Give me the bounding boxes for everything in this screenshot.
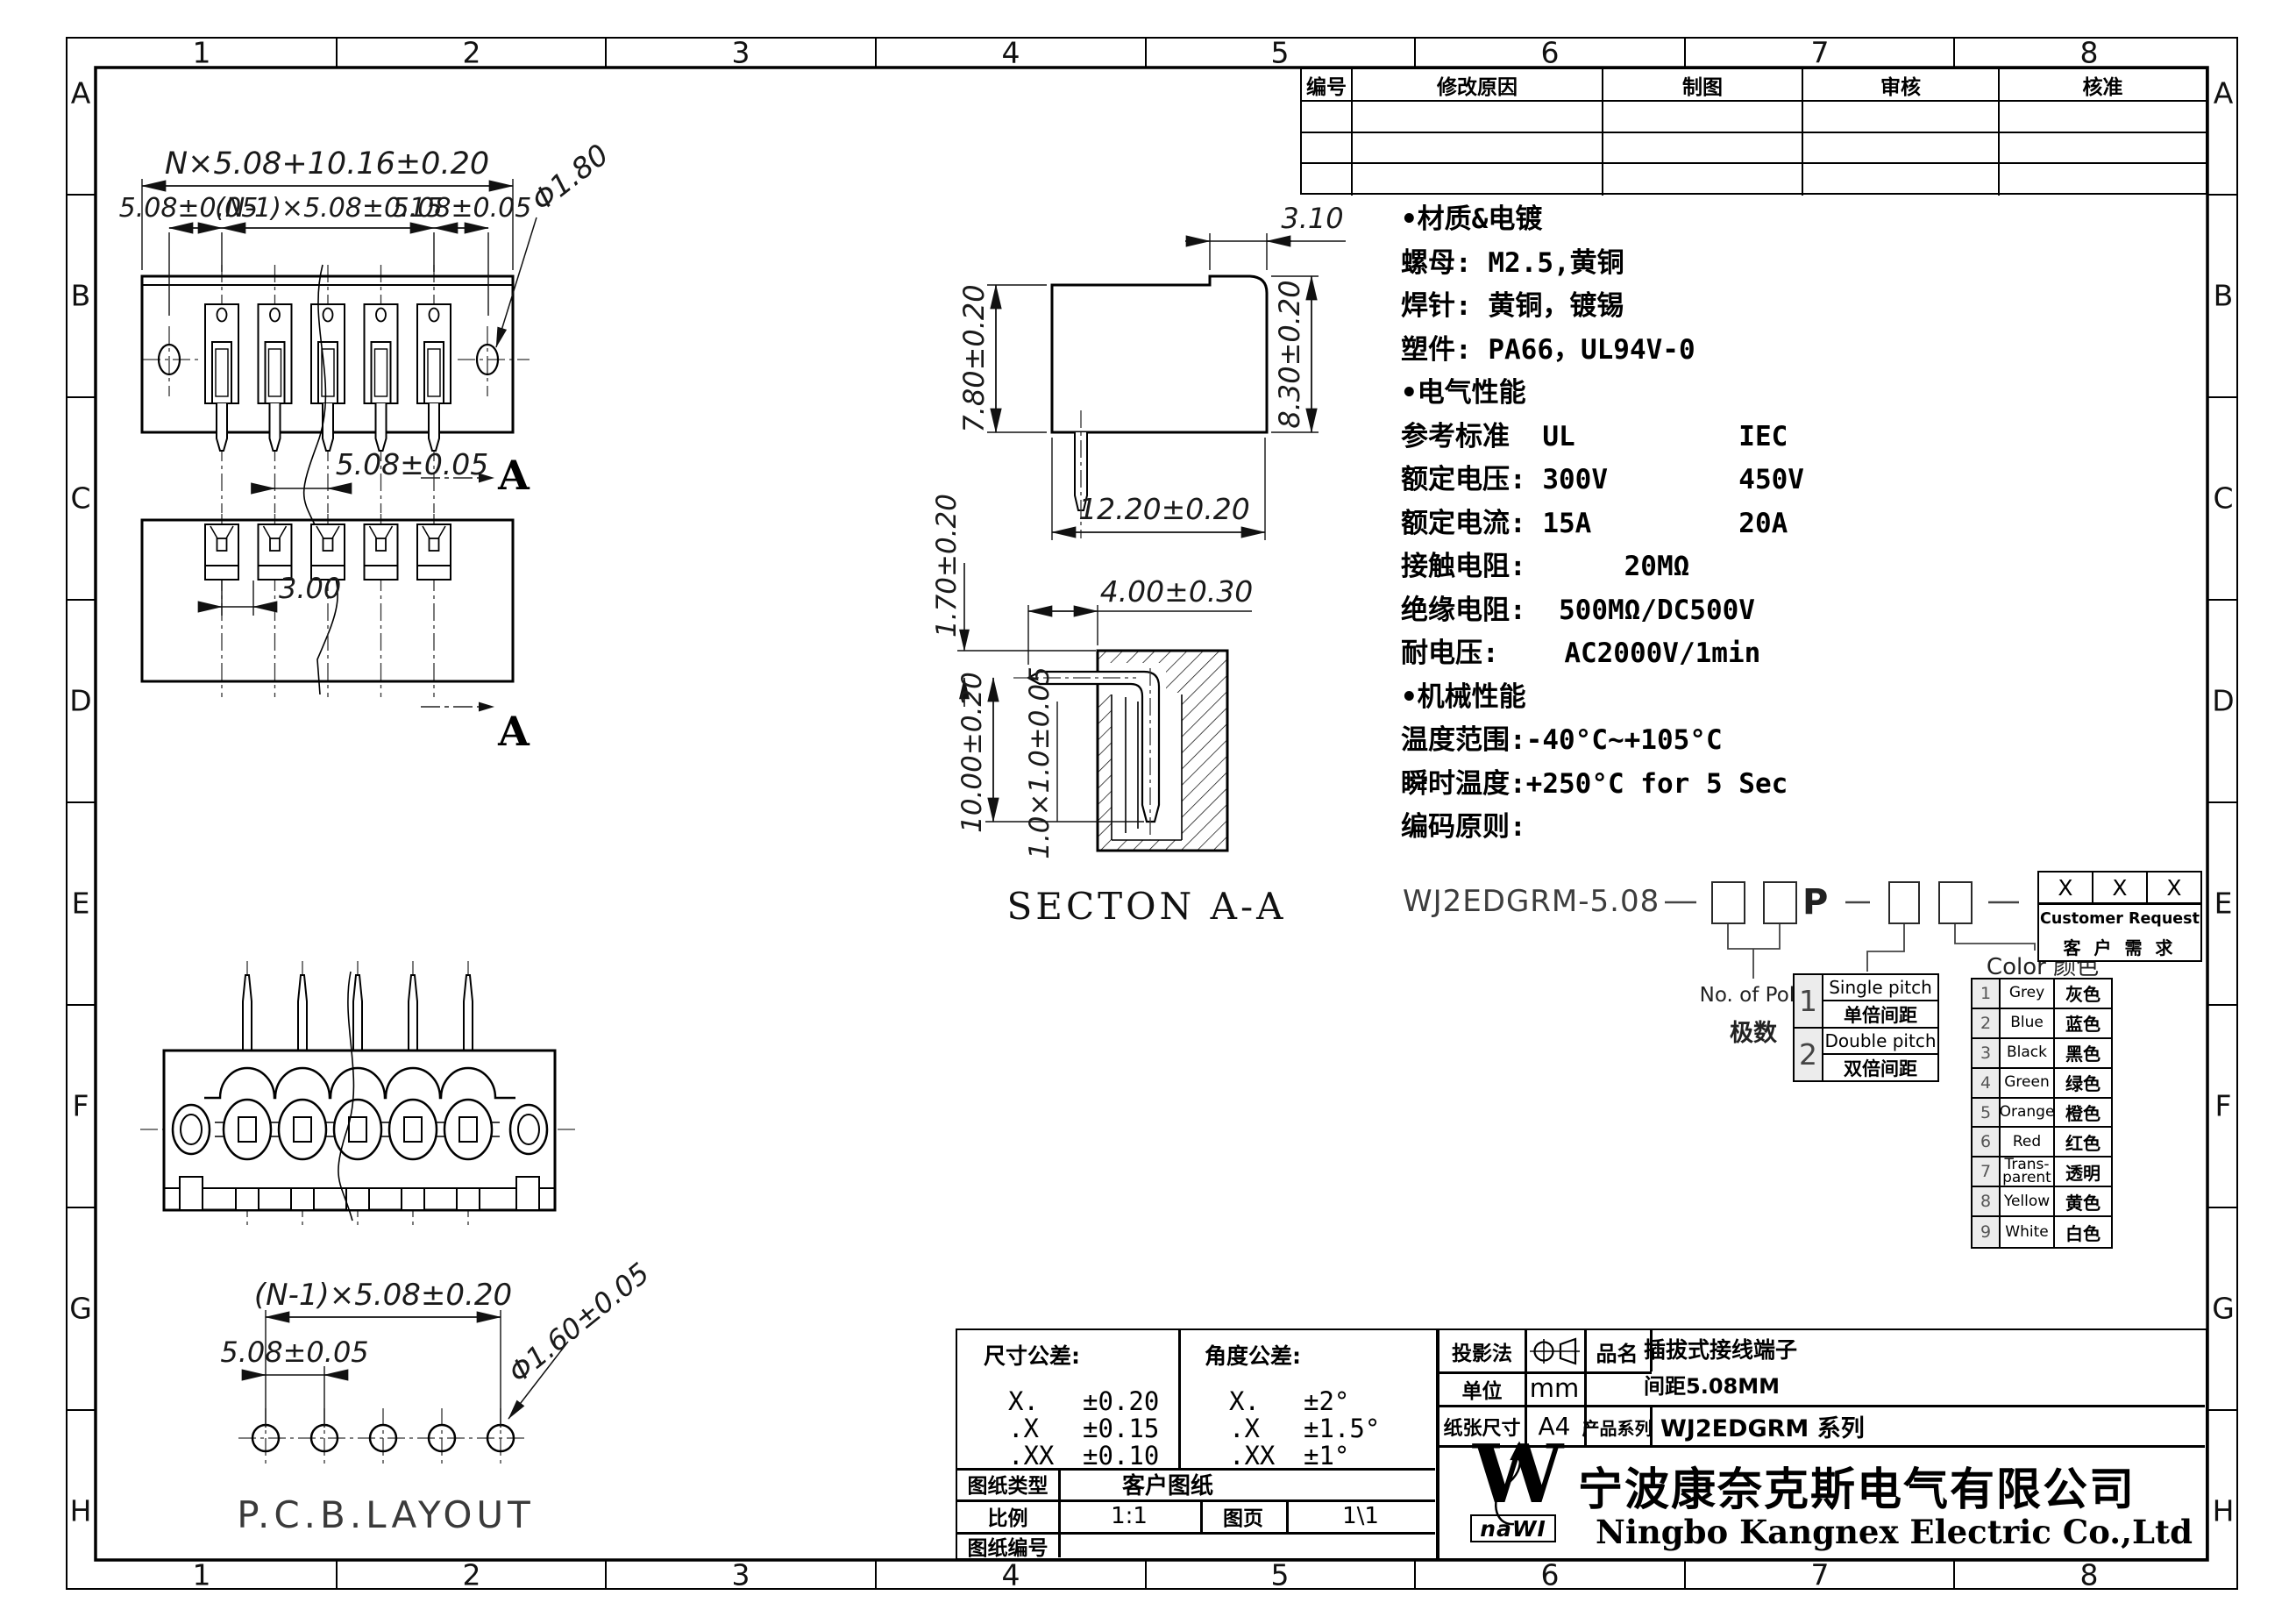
revision-empty-row [1302,102,2206,133]
color-name-en: White [2001,1217,2055,1247]
color-row: 4 Green 绿色 [1973,1069,2111,1099]
pitch-row: 2 Double pitch 双倍间距 [1795,1029,1937,1080]
product-name-label: 品名 [1584,1337,1650,1365]
pitch-label-cn: 单倍间距 [1823,1001,1937,1027]
company-name-cn: 宁波康奈克斯电气有限公司 [1578,1453,2136,1518]
dim-pcb-pitch: 5.08±0.05 [220,1336,368,1369]
dim-tolerance-title: 尺寸公差: [984,1339,1080,1371]
dim-pin-square: 1.0×1.0±0.05 [1024,666,1056,859]
pole-digit-box-2 [1763,881,1797,924]
dim-pitch-single: 5.08±0.05 [336,447,489,481]
spec-line: 额定电压: 300V 450V [1401,459,2216,502]
tolerance-row: .XX±1° [1229,1442,1422,1470]
part-suffix-p: P [1802,882,1828,922]
section-title: SECTON A-A [1007,885,1287,928]
dim-total-width: N×5.08+10.16±0.20 [165,146,489,182]
spec-line: •电气性能 [1401,372,2216,416]
color-code: 1 [1973,979,2001,1008]
row-label: B [71,279,91,313]
tolerance-block: 尺寸公差: X.±0.20.X±0.15.XX±0.10 角度公差: X.±2°… [956,1328,1438,1560]
row-label: G [2212,1292,2235,1326]
color-row: 3 Black 黑色 [1973,1039,2111,1069]
dim-hole-dia: Φ1.80 [525,137,615,217]
spec-line: 温度范围:-40°C~+105°C [1401,719,2216,763]
bottom-view [140,961,579,1229]
angle-tolerance-title: 角度公差: [1205,1339,1301,1371]
revision-table: 编号 修改原因 制图 审核 核准 [1300,68,2207,195]
dim-pcb-hole: Φ1.60±0.05 [502,1257,656,1390]
col-label: 4 [1002,36,1020,70]
color-code: 7 [1973,1157,2001,1186]
color-name-en: Grey [2001,979,2055,1008]
col-label: 6 [1541,36,1560,70]
pitch-label-cn: 双倍间距 [1823,1055,1937,1080]
color-name-cn: 绿色 [2055,1069,2111,1097]
title-block: 投影法 品名 插拔式接线端子 间距5.08MM 单位 mm 纸张尺寸 A4 产品… [1438,1328,2207,1560]
customer-request-en: Customer Request [2039,905,2200,932]
row-label: D [69,684,91,718]
revision-empty-row [1302,164,2206,196]
row-label: C [70,481,90,516]
row-label: B [2214,279,2234,313]
revision-header: 制图 [1603,69,1803,100]
tolerance-row: .X±0.15 [1008,1415,1201,1442]
col-label: 5 [1271,36,1290,70]
color-code: 2 [1973,1009,2001,1037]
col-label: 2 [463,1558,481,1592]
col-label: 1 [193,1558,211,1592]
customer-x-row: X X X [2039,873,2200,905]
product-name-line1: 插拔式接线端子 [1644,1336,1994,1362]
color-name-en: Black [2001,1039,2055,1067]
col-label: 6 [1541,1558,1560,1592]
spec-line: 绝缘电阻: 500MΩ/DC500V [1401,589,2216,633]
dim-400: 4.00±0.30 [1100,574,1254,609]
spec-line: 焊针: 黄铜，镀锡 [1401,285,2216,329]
revision-header-row: 编号 修改原因 制图 审核 核准 [1302,69,2206,102]
spec-line: 额定电流: 15A 20A [1401,502,2216,546]
color-row: 6 Red 红色 [1973,1128,2111,1157]
tolerance-row: .X±1.5° [1229,1415,1422,1442]
dim-3mm: 3.00 [279,572,341,605]
color-table: 1 Grey 灰色 2 Blue 蓝色 3 Black 黑色 4 Green 绿… [1971,978,2113,1249]
col-label: 4 [1002,1558,1020,1592]
product-name-line2: 间距5.08MM [1644,1371,1994,1397]
spec-line: 瞬时温度:+250°C for 5 Sec [1401,763,2216,807]
spec-line: 塑件: PA66，UL94V-0 [1401,329,2216,373]
revision-header: 审核 [1803,69,2000,100]
pcb-layout: (N-1)×5.08±0.20 5.08±0.05 Φ1.60±0.05 P.C… [220,1257,656,1536]
row-label: G [69,1292,92,1326]
dim-tolerance-rows: X.±0.20.X±0.15.XX±0.10 [1008,1388,1201,1470]
color-name-cn: 灰色 [2055,979,2111,1008]
revision-empty-row [1302,133,2206,165]
color-name-en: Trans- parent [2001,1157,2055,1186]
doc-type-label: 图纸类型 [957,1468,1058,1499]
col-label: 3 [732,1558,750,1592]
tolerance-row: X.±2° [1229,1388,1422,1415]
first-angle-projection-icon [1526,1332,1583,1371]
pitch-label-en: Single pitch [1823,975,1937,1001]
pole-digit-box-1 [1711,881,1745,924]
spec-line: •机械性能 [1401,676,2216,720]
doc-number-value [1058,1532,1435,1559]
spec-line: 参考标准 UL IEC [1401,416,2216,459]
part-number: WJ2EDGRM-5.08 [1403,884,1660,919]
pcb-layout-label: P.C.B.LAYOUT [237,1493,535,1536]
pitch-code: 2 [1795,1029,1823,1080]
drawing-sheet: N×5.08+10.16±0.20 5.08±0.05 (N-1)×5.08±0… [0,0,2296,1624]
customer-x: X [2148,873,2200,902]
dim-170: 1.70±0.20 [931,494,963,637]
section-marker-bottom: A [497,708,530,755]
col-label: 2 [463,36,481,70]
pitch-row: 1 Single pitch 单倍间距 [1795,975,1937,1029]
color-name-en: Red [2001,1128,2055,1156]
spec-list: •材质&电镀螺母: M2.5,黄铜焊针: 黄铜，镀锡塑件: PA66，UL94V… [1401,198,2216,850]
color-name-cn: 黑色 [2055,1039,2111,1067]
page-value: 1\1 [1286,1499,1435,1532]
pitch-label-en: Double pitch [1823,1029,1937,1055]
dim-1220: 12.20±0.20 [1078,492,1250,526]
col-label: 3 [732,36,750,70]
projection-label: 投影法 [1439,1337,1525,1365]
customer-request-box: X X X Customer Request 客 户 需 求 [2037,871,2202,962]
unit-label: 单位 [1439,1376,1525,1402]
tolerance-row: X.±0.20 [1008,1388,1201,1415]
company-logo-text: naWI [1470,1514,1556,1542]
color-code: 3 [1973,1039,2001,1067]
pitch-digit-box [1888,881,1920,924]
row-label: F [2215,1089,2232,1123]
col-label: 7 [1811,1558,1830,1592]
series-label: 产品系列 [1584,1414,1650,1440]
color-code: 6 [1973,1128,2001,1156]
row-label: H [70,1494,92,1528]
color-code: 8 [1973,1187,2001,1215]
spec-line: 耐电压: AC2000V/1min [1401,632,2216,676]
doc-type-value: 客户图纸 [1063,1468,1273,1499]
customer-request-cn: 客 户 需 求 [2039,932,2200,960]
col-label: 5 [1271,1558,1290,1592]
section-marker-top: A [497,452,530,499]
spec-line: 螺母: M2.5,黄铜 [1401,242,2216,286]
dim-pitch-right: 5.08±0.05 [393,193,532,224]
color-name-cn: 蓝色 [2055,1009,2111,1037]
revision-header: 修改原因 [1353,69,1603,100]
row-label: E [72,887,90,921]
side-view: 3.10 7.80±0.20 8.30±0.20 12.20±0.20 [957,202,1346,540]
color-row: 7 Trans- parent 透明 [1973,1157,2111,1187]
row-label: A [2214,76,2234,110]
color-row: 5 Orange 橙色 [1973,1099,2111,1129]
row-label: F [73,1089,89,1123]
color-row: 1 Grey 灰色 [1973,979,2111,1009]
doc-number-label: 图纸编号 [957,1532,1058,1559]
color-name-en: Yellow [2001,1187,2055,1215]
color-row: 9 White 白色 [1973,1217,2111,1247]
dim-830: 8.30±0.20 [1273,280,1306,428]
color-row: 2 Blue 蓝色 [1973,1009,2111,1039]
revision-header: 编号 [1302,69,1353,100]
color-name-cn: 白色 [2055,1217,2111,1247]
color-name-en: Orange [2001,1099,2055,1127]
spec-line: 编码原则: [1401,806,2216,850]
color-row: 8 Yellow 黄色 [1973,1187,2111,1217]
color-code: 4 [1973,1069,2001,1097]
scale-value: 1:1 [1058,1499,1200,1532]
top-view: 3.00 [142,514,513,697]
color-name-en: Green [2001,1069,2055,1097]
angle-tolerance-rows: X.±2°.X±1.5°.XX±1° [1229,1388,1422,1470]
color-digit-box [1938,881,1973,924]
dim-pcb-total: (N-1)×5.08±0.20 [254,1278,512,1313]
color-name-cn: 黄色 [2055,1187,2111,1215]
company-name-en: Ningbo Kangnex Electric Co.,Ltd [1596,1513,2193,1551]
company-logo-w: W [1473,1434,1563,1514]
tolerance-row: .XX±0.10 [1008,1442,1201,1470]
row-label: E [2214,887,2233,921]
unit-value: mm [1525,1374,1584,1402]
col-label: 8 [2080,1558,2099,1592]
color-name-cn: 橙色 [2055,1099,2111,1127]
color-name-cn: 透明 [2055,1157,2111,1186]
color-code: 9 [1973,1217,2001,1247]
section-view: 4.00±0.30 1.70±0.20 10.00±0.20 1.0×1.0±0… [931,494,1286,928]
series-value: WJ2EDGRM 系列 [1660,1412,1967,1440]
pitch-table: 1 Single pitch 单倍间距 2 Double pitch 双倍间距 [1793,973,1939,1082]
spec-line: •材质&电镀 [1401,198,2216,242]
pitch-code: 1 [1795,975,1823,1027]
page-label: 图页 [1200,1499,1286,1532]
row-label: A [71,76,91,110]
col-label: 7 [1811,36,1830,70]
row-label: H [2213,1494,2235,1528]
customer-x: X [2039,873,2093,902]
revision-header: 核准 [2000,69,2206,100]
color-code: 5 [1973,1099,2001,1127]
col-label: 8 [2080,36,2099,70]
col-label: 1 [193,36,211,70]
dim-1000: 10.00±0.20 [956,672,988,833]
spec-line: 接触电阻: 20MΩ [1401,545,2216,589]
dim-310: 3.10 [1281,202,1343,235]
color-name-cn: 红色 [2055,1128,2111,1156]
scale-label: 比例 [957,1499,1058,1532]
color-name-en: Blue [2001,1009,2055,1037]
customer-x: X [2093,873,2148,902]
dim-780: 7.80±0.20 [957,284,991,432]
